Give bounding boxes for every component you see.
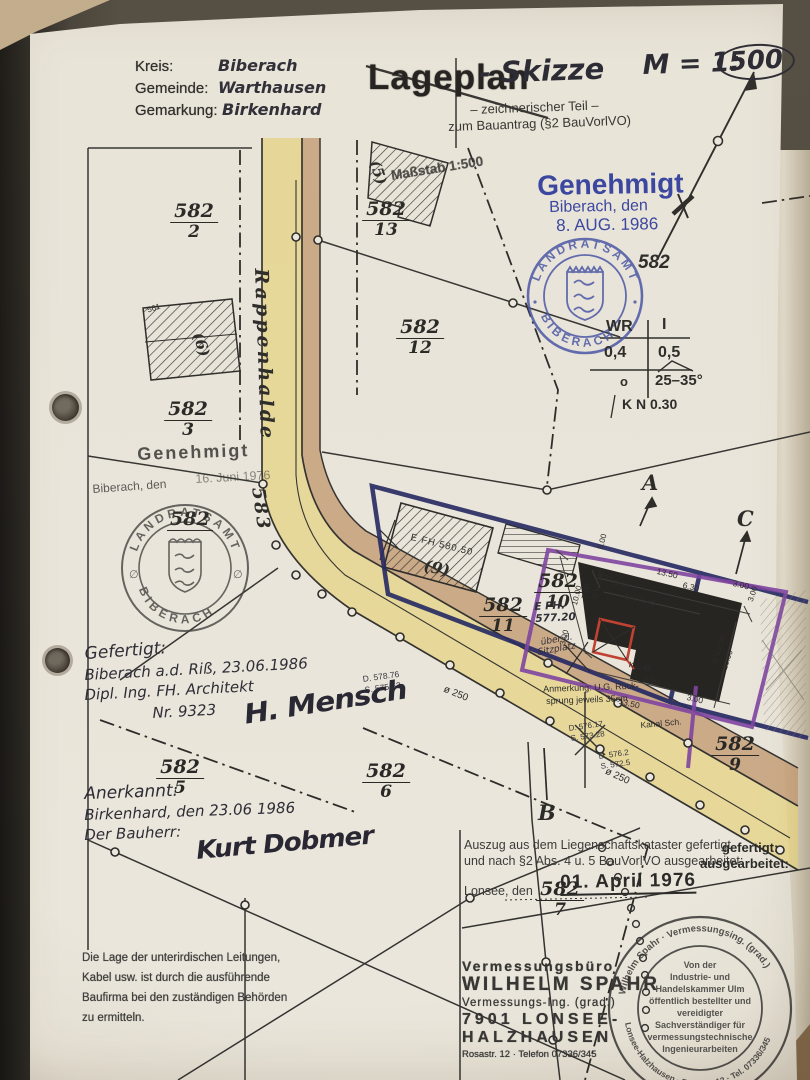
parcel-582-right: 582 (638, 252, 670, 274)
pipe-250-2: ø 250 (603, 766, 631, 787)
zoning-roof-sym: o (620, 374, 628, 389)
dim-dv045: D V 0.45 (624, 592, 656, 608)
dim-630: 6.30 (682, 580, 700, 593)
pipe-250-1: ø 250 (442, 684, 470, 704)
approval-1976-date: 16. Juni 1976 (195, 468, 271, 486)
gemeinde-label: Gemeinde: (135, 80, 208, 97)
parcel-582-2: 5822 (170, 202, 218, 242)
parcel-582-6: 5826 (362, 762, 410, 802)
auszug-date-stamp: 01. April 1976 (560, 870, 696, 896)
kreis-value: Biberach (218, 56, 298, 75)
surveyor-title: Vermessungs-Ing. (grad.) (462, 997, 616, 1009)
disclaimer-line3: Baufirma bei den zuständigen Behörden (82, 992, 287, 1004)
anerkannt-role: Der Bauherr: (84, 823, 181, 844)
anerkannt-label: Anerkannt: (84, 781, 179, 804)
surveyor-city2: HALZHAUSEN (462, 1029, 612, 1047)
auszug-bold1: gefertigt: (722, 840, 778, 855)
title-scale-circled: 500 (716, 42, 796, 82)
kreis-label: Kreis: (135, 58, 173, 75)
zoning-roof-pitch: 25–35° (655, 372, 703, 389)
disclaimer-line2: Kabel usw. ist durch die ausführende (82, 972, 270, 984)
approval-1976-word: Genehmigt (137, 440, 250, 465)
text-layer: Kreis: Biberach Gemeinde: Warthausen Gem… (0, 0, 810, 1080)
building-5-label: (5) (366, 158, 391, 187)
dim-1350-top: 13.50 (656, 566, 679, 581)
gefertigt-label: Gefertigt: (84, 638, 167, 664)
disclaimer-line4: zu ermitteln. (82, 1012, 145, 1024)
approval-1976-place: Biberach, den (92, 477, 167, 496)
title-hand: - Skizze (478, 52, 605, 90)
massstab-stamp: Maßstab 1:500 (390, 153, 484, 182)
punch-hole-bottom (45, 648, 70, 673)
parcel-582-3: 5823 (164, 400, 212, 440)
anmerkung-1: Anmerkung: U.G. Rück- (543, 681, 639, 694)
parcel-582-stamped: 582 (167, 508, 213, 531)
gemarkung-value: Birkenhard (222, 100, 321, 119)
new-efh-value: 577.20 (535, 611, 576, 625)
kanal-schacht: Kanal Sch. (640, 716, 682, 730)
zoning-floors: I (662, 316, 666, 334)
gemarkung-label: Gemarkung: (135, 102, 218, 119)
parcel-582-9: 5829 (711, 735, 759, 775)
zoning-grz: 0,4 (604, 344, 626, 362)
zoning-gfz: 0,5 (658, 344, 680, 362)
auszug-bold2: ausgearbeitet: (700, 856, 789, 871)
surveyor-office: Vermessungsbüro (462, 958, 614, 974)
gefertigt-number: Nr. 9323 (152, 701, 217, 722)
section-c: C (737, 506, 754, 531)
dim-500: 5.00 (596, 533, 609, 550)
owner-signature: Kurt Dobmer (195, 821, 374, 865)
section-b: B (538, 800, 556, 825)
parcel-582-11: 58211 (479, 596, 527, 636)
dim-k045: K 0.45 (628, 660, 653, 674)
zoning-wr: WR (606, 318, 633, 336)
surveyor-city1: 7901 LONSEE- (462, 1011, 621, 1029)
scanned-site-plan: LANDRATSAMT BIBERACH LANDRATSAMT BIBERAC… (0, 0, 810, 1080)
dim-300-b: 3.00 (686, 692, 704, 705)
parcel-582-13: 58213 (362, 200, 410, 240)
approval-1986-date: 8. AUG. 1986 (556, 214, 658, 236)
punch-hole-top (52, 394, 79, 421)
zoning-kn: K N 0.30 (622, 396, 677, 412)
dim-990: 9.90 (642, 674, 660, 687)
anmerkung-2: sprung jeweils 35cm (546, 693, 628, 706)
dim-dv030-l: D V 0.30 (590, 570, 606, 600)
surveyor-name: WILHELM SPAHR (462, 974, 660, 996)
section-a: A (642, 470, 658, 495)
dim-343: 3.43 (612, 578, 629, 590)
approval-1986-word: Genehmigt (537, 167, 684, 202)
house-number-561: 561 (146, 302, 161, 315)
auszug-line1: Auszug aus dem Liegenschaftskataster gef… (464, 838, 731, 852)
auszug-lonsee: Lonsee, den (464, 884, 533, 898)
surveyor-address: Rosastr. 12 · Telefon 07336/345 (462, 1049, 597, 1060)
street-number-583: 583 (247, 486, 274, 532)
architect-signature: H. Mensch (242, 674, 409, 730)
dim-300-tr: 3.00 (732, 578, 750, 591)
building-9-efh: E FH 580.50 (409, 532, 474, 558)
building-9-label: (9) (422, 556, 452, 580)
street-name-rappenhalde: Rappenhalde (250, 268, 278, 441)
gemeinde-value: Warthausen (218, 78, 326, 97)
disclaimer-line1: Die Lage der unterirdischen Leitungen, (82, 952, 280, 964)
parcel-582-12: 58212 (396, 318, 444, 358)
building-6-label: (6) (189, 330, 214, 359)
